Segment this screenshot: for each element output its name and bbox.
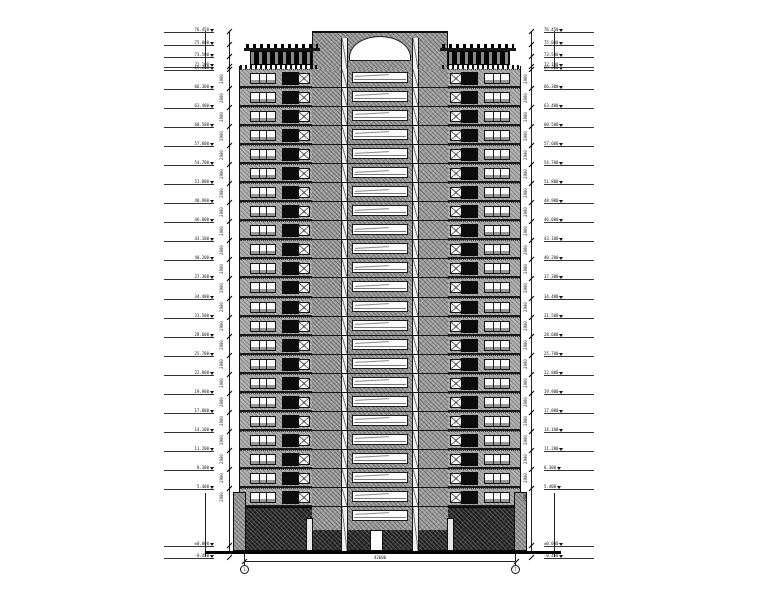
elevation-marker-icon — [559, 448, 563, 451]
elevation-marker-icon — [559, 334, 563, 337]
chain-tick — [227, 238, 233, 244]
chain-tick — [227, 543, 233, 549]
elevation-label: 57.600 — [544, 141, 594, 147]
elevation-marker-icon — [559, 410, 563, 413]
storey-height-dimension: 2900 — [524, 244, 528, 256]
chain-tick — [227, 105, 233, 111]
elevation-marker-icon — [557, 486, 561, 489]
chain-tick — [227, 409, 233, 415]
elevation-marker-icon — [559, 105, 563, 108]
storey-height-dimension: 2900 — [524, 187, 528, 199]
storey-height-dimension: 2900 — [220, 358, 224, 370]
elevation-label: 31.500 — [544, 313, 594, 319]
storey-height-dimension: 2900 — [220, 339, 224, 351]
chain-tick — [227, 314, 233, 320]
storey-height-dimension: 2900 — [220, 244, 224, 256]
chain-tick — [529, 428, 535, 434]
elevation-marker-icon — [210, 162, 214, 165]
elevation-label: 17.000 — [544, 408, 594, 414]
elevation-marker-icon — [559, 238, 563, 241]
elevation-marker-icon — [210, 467, 214, 470]
chain-tick — [529, 295, 535, 301]
chain-tick — [227, 448, 233, 454]
chain-tick — [529, 467, 535, 473]
storey-height-dimension: 2900 — [524, 263, 528, 275]
elevation-drawing-sheet: 42600 1 7 69.20069.2002900290066.30066.3… — [0, 0, 760, 608]
storey-height-dimension: 2900 — [524, 92, 528, 104]
elevation-marker-icon — [559, 200, 563, 203]
elevation-label: 14.100 — [544, 427, 594, 433]
storey-height-dimension: 2900 — [220, 111, 224, 123]
elevation-marker-icon — [210, 486, 214, 489]
elevation-label: 60.500 — [164, 122, 214, 128]
elevation-marker-icon — [210, 429, 214, 432]
elevation-label: 75.000 — [164, 40, 214, 46]
elevation-label: 34.400 — [544, 294, 594, 300]
elevation-label: 19.900 — [164, 389, 214, 395]
chain-tick — [529, 143, 535, 149]
storey-height-dimension: 2900 — [220, 491, 224, 503]
elevation-label: 5.400 — [544, 484, 594, 490]
chain-tick — [529, 333, 535, 339]
elevation-marker-icon — [559, 64, 563, 67]
chain-tick — [529, 257, 535, 263]
elevation-label: 37.300 — [164, 274, 214, 280]
elevation-marker-icon — [210, 372, 214, 375]
elevation-label: 60.500 — [544, 122, 594, 128]
chain-tick — [227, 54, 233, 60]
elevation-marker-icon — [210, 124, 214, 127]
chain-tick — [227, 42, 233, 48]
elevation-label: 25.700 — [164, 351, 214, 357]
storey-height-dimension: 2900 — [524, 320, 528, 332]
elevation-label: -0.450 — [164, 553, 214, 559]
storey-height-dimension: 2900 — [220, 263, 224, 275]
elevation-marker-icon — [210, 105, 214, 108]
elevation-label: 66.300 — [544, 84, 594, 90]
elevation-label: 54.700 — [164, 160, 214, 166]
storey-height-dimension: 2900 — [220, 282, 224, 294]
chain-tick — [227, 333, 233, 339]
elevation-marker-icon — [210, 219, 214, 222]
storey-height-dimension: 2900 — [524, 396, 528, 408]
elevation-marker-icon — [559, 54, 563, 57]
storey-height-dimension: 2900 — [524, 130, 528, 142]
storey-height-dimension: 2900 — [524, 358, 528, 370]
elevation-label: 46.000 — [164, 217, 214, 223]
elevation-label: 76.450 — [544, 27, 594, 33]
chain-tick — [529, 54, 535, 60]
elevation-label: 40.200 — [164, 255, 214, 261]
elevation-marker-icon — [210, 238, 214, 241]
storey-height-dimension: 2900 — [220, 92, 224, 104]
chain-tick — [529, 314, 535, 320]
elevation-label: 17.000 — [164, 408, 214, 414]
chain-tick — [529, 86, 535, 92]
elevation-marker-icon — [210, 315, 214, 318]
elevation-marker-icon — [559, 29, 563, 32]
elevation-label: 8.300 — [164, 465, 214, 471]
storey-height-dimension: 2900 — [524, 149, 528, 161]
chain-tick — [227, 371, 233, 377]
chain-tick — [529, 448, 535, 454]
chain-tick — [227, 162, 233, 168]
chain-tick — [529, 162, 535, 168]
elevation-marker-icon — [557, 467, 561, 470]
storey-height-dimension: 2900 — [220, 73, 224, 85]
elevation-label: 72.100 — [164, 62, 214, 68]
chain-tick — [227, 29, 233, 35]
storey-height-dimension: 2900 — [220, 415, 224, 427]
elevation-label: 40.200 — [544, 255, 594, 261]
chain-tick — [529, 352, 535, 358]
chain-tick — [227, 219, 233, 225]
storey-height-dimension: 2900 — [524, 339, 528, 351]
elevation-marker-icon — [210, 143, 214, 146]
elevation-label: 43.100 — [164, 236, 214, 242]
elevation-label: 51.800 — [544, 179, 594, 185]
elevation-marker-icon — [210, 181, 214, 184]
elevation-marker-icon — [559, 296, 563, 299]
elevation-label: 76.450 — [164, 27, 214, 33]
chain-tick — [227, 352, 233, 358]
elevation-label: 51.800 — [164, 179, 214, 185]
chain-tick — [227, 428, 233, 434]
elevation-label: 46.000 — [544, 217, 594, 223]
elevation-label: 73.500 — [164, 52, 214, 58]
chain-tick — [529, 371, 535, 377]
elevation-label: 48.900 — [544, 198, 594, 204]
elevation-label: 72.100 — [544, 62, 594, 68]
storey-height-dimension: 2900 — [220, 434, 224, 446]
storey-height-dimension: 2900 — [220, 130, 224, 142]
storey-height-dimension: 2900 — [220, 301, 224, 313]
elevation-label: 28.600 — [544, 332, 594, 338]
chain-tick — [529, 276, 535, 282]
elevation-marker-icon — [210, 42, 214, 45]
elevation-marker-icon — [559, 391, 563, 394]
elevation-marker-icon — [559, 219, 563, 222]
elevation-marker-icon — [559, 143, 563, 146]
chain-tick — [227, 86, 233, 92]
elevation-marker-icon — [210, 86, 214, 89]
elevation-marker-icon — [559, 555, 563, 558]
elevation-marker-icon — [559, 543, 563, 546]
chain-tick — [529, 390, 535, 396]
elevation-label: 22.800 — [544, 370, 594, 376]
storey-height-dimension: 2900 — [524, 73, 528, 85]
elevation-label: 73.500 — [544, 52, 594, 58]
chain-tick — [227, 257, 233, 263]
elevation-label: 8.300 — [544, 465, 594, 471]
chain-tick — [227, 200, 233, 206]
chain-tick — [529, 486, 535, 492]
chain-tick — [529, 409, 535, 415]
elevation-marker-icon — [559, 276, 563, 279]
chain-tick — [529, 555, 535, 561]
elevation-label: 66.300 — [164, 84, 214, 90]
elevation-marker-icon — [559, 162, 563, 165]
chain-tick — [529, 29, 535, 35]
elevation-label: 57.600 — [164, 141, 214, 147]
elevation-marker-icon — [210, 555, 214, 558]
chain-tick — [529, 219, 535, 225]
elevation-marker-icon — [559, 124, 563, 127]
storey-height-dimension: 2900 — [524, 377, 528, 389]
elevation-marker-icon — [210, 64, 214, 67]
elevation-marker-icon — [210, 543, 214, 546]
elevation-marker-icon — [210, 410, 214, 413]
elevation-label: 28.600 — [164, 332, 214, 338]
dimension-labels-layer: 69.20069.2002900290066.30066.30029002900… — [0, 0, 760, 608]
storey-height-dimension: 2900 — [524, 301, 528, 313]
elevation-marker-icon — [559, 353, 563, 356]
storey-height-dimension: 2900 — [524, 472, 528, 484]
chain-tick — [227, 467, 233, 473]
elevation-label: 63.400 — [544, 103, 594, 109]
storey-height-dimension: 2900 — [220, 377, 224, 389]
storey-height-dimension: 2900 — [524, 111, 528, 123]
elevation-label: 43.100 — [544, 236, 594, 242]
chain-tick — [227, 143, 233, 149]
storey-height-dimension: 2900 — [220, 168, 224, 180]
chain-tick — [529, 124, 535, 130]
storey-height-dimension: 2900 — [220, 225, 224, 237]
elevation-marker-icon — [210, 29, 214, 32]
storey-height-dimension: 2900 — [524, 206, 528, 218]
chain-tick — [227, 181, 233, 187]
storey-height-dimension: 2900 — [220, 206, 224, 218]
elevation-marker-icon — [210, 276, 214, 279]
storey-height-dimension: 2900 — [524, 434, 528, 446]
elevation-label: 11.200 — [544, 446, 594, 452]
elevation-label: 54.700 — [544, 160, 594, 166]
elevation-label: 22.800 — [164, 370, 214, 376]
elevation-label: 5.400 — [164, 484, 214, 490]
chain-tick — [227, 295, 233, 301]
elevation-label: 25.700 — [544, 351, 594, 357]
elevation-marker-icon — [210, 296, 214, 299]
chain-tick — [529, 238, 535, 244]
storey-height-dimension: 2900 — [220, 396, 224, 408]
storey-height-dimension: 2900 — [524, 453, 528, 465]
elevation-marker-icon — [559, 181, 563, 184]
storey-height-dimension: 2900 — [220, 149, 224, 161]
elevation-label: 31.500 — [164, 313, 214, 319]
elevation-label: 11.200 — [164, 446, 214, 452]
elevation-label: 75.000 — [544, 40, 594, 46]
elevation-label: 14.100 — [164, 427, 214, 433]
chain-tick — [529, 181, 535, 187]
storey-height-dimension: 2900 — [220, 320, 224, 332]
elevation-marker-icon — [210, 353, 214, 356]
chain-tick — [227, 486, 233, 492]
chain-tick — [227, 555, 233, 561]
storey-height-dimension: 2900 — [524, 415, 528, 427]
chain-tick — [529, 543, 535, 549]
elevation-marker-icon — [559, 42, 563, 45]
storey-height-dimension: 2900 — [524, 491, 528, 503]
elevation-label: ±0.000 — [164, 541, 214, 547]
storey-height-dimension: 2900 — [220, 187, 224, 199]
elevation-marker-icon — [210, 334, 214, 337]
elevation-label: -0.450 — [544, 553, 594, 559]
elevation-marker-icon — [559, 86, 563, 89]
chain-tick — [227, 276, 233, 282]
elevation-marker-icon — [210, 200, 214, 203]
elevation-marker-icon — [210, 448, 214, 451]
elevation-marker-icon — [559, 429, 563, 432]
chain-tick — [227, 124, 233, 130]
elevation-label: 48.900 — [164, 198, 214, 204]
chain-tick — [529, 105, 535, 111]
elevation-label: ±0.000 — [544, 541, 594, 547]
elevation-marker-icon — [559, 372, 563, 375]
elevation-label: 19.900 — [544, 389, 594, 395]
elevation-label: 63.400 — [164, 103, 214, 109]
elevation-marker-icon — [210, 257, 214, 260]
elevation-marker-icon — [559, 257, 563, 260]
chain-tick — [529, 200, 535, 206]
storey-height-dimension: 2900 — [524, 168, 528, 180]
storey-height-dimension: 2900 — [524, 225, 528, 237]
storey-height-dimension: 2900 — [524, 282, 528, 294]
elevation-marker-icon — [210, 54, 214, 57]
elevation-label: 37.300 — [544, 274, 594, 280]
elevation-marker-icon — [559, 315, 563, 318]
storey-height-dimension: 2900 — [220, 472, 224, 484]
chain-tick — [227, 390, 233, 396]
elevation-label: 34.400 — [164, 294, 214, 300]
storey-height-dimension: 2900 — [220, 453, 224, 465]
elevation-marker-icon — [210, 391, 214, 394]
chain-tick — [529, 42, 535, 48]
